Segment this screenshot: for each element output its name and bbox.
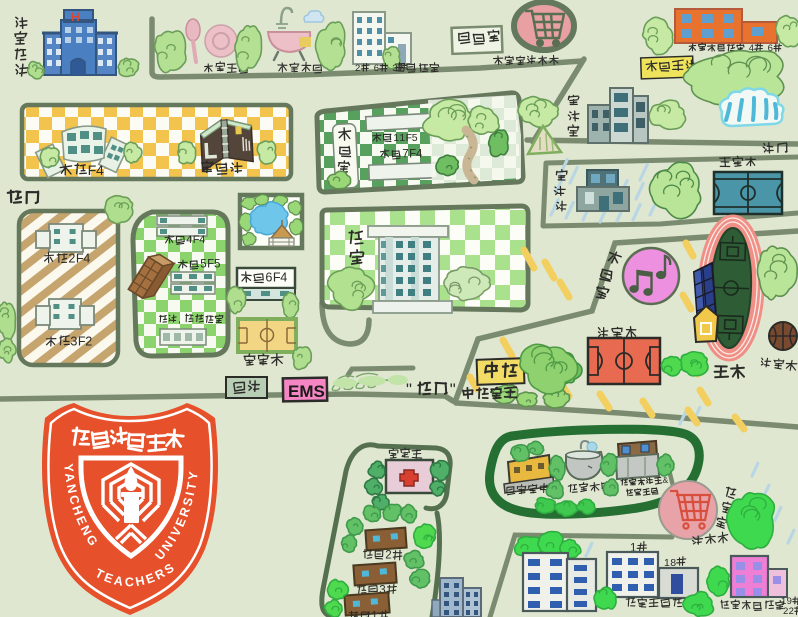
svg-text:1: 1	[399, 132, 405, 144]
svg-text:": "	[406, 380, 412, 399]
svg-text:H: H	[71, 10, 80, 24]
svg-text:4: 4	[96, 163, 104, 179]
svg-text:4: 4	[199, 234, 205, 246]
svg-text:1: 1	[393, 132, 399, 144]
svg-text:6: 6	[265, 271, 272, 285]
svg-text:EMS: EMS	[288, 382, 325, 401]
svg-text:3: 3	[70, 335, 77, 349]
svg-text:7: 7	[402, 148, 408, 161]
svg-text:5: 5	[214, 258, 220, 271]
svg-text:5: 5	[412, 132, 418, 144]
svg-text:": "	[450, 380, 456, 399]
svg-text:2: 2	[789, 606, 794, 617]
svg-text:6: 6	[374, 63, 379, 74]
svg-text:1: 1	[371, 610, 377, 617]
svg-text:,: ,	[178, 314, 181, 325]
svg-text:4: 4	[416, 148, 423, 161]
svg-text:4: 4	[83, 252, 90, 266]
svg-text:2: 2	[85, 335, 92, 349]
svg-text:2: 2	[783, 606, 788, 617]
svg-text:2: 2	[355, 63, 360, 74]
svg-text:4: 4	[280, 271, 287, 285]
svg-text:5: 5	[200, 258, 206, 271]
svg-text:2: 2	[68, 252, 75, 266]
svg-text:4: 4	[186, 234, 192, 246]
svg-text:2: 2	[385, 549, 391, 562]
